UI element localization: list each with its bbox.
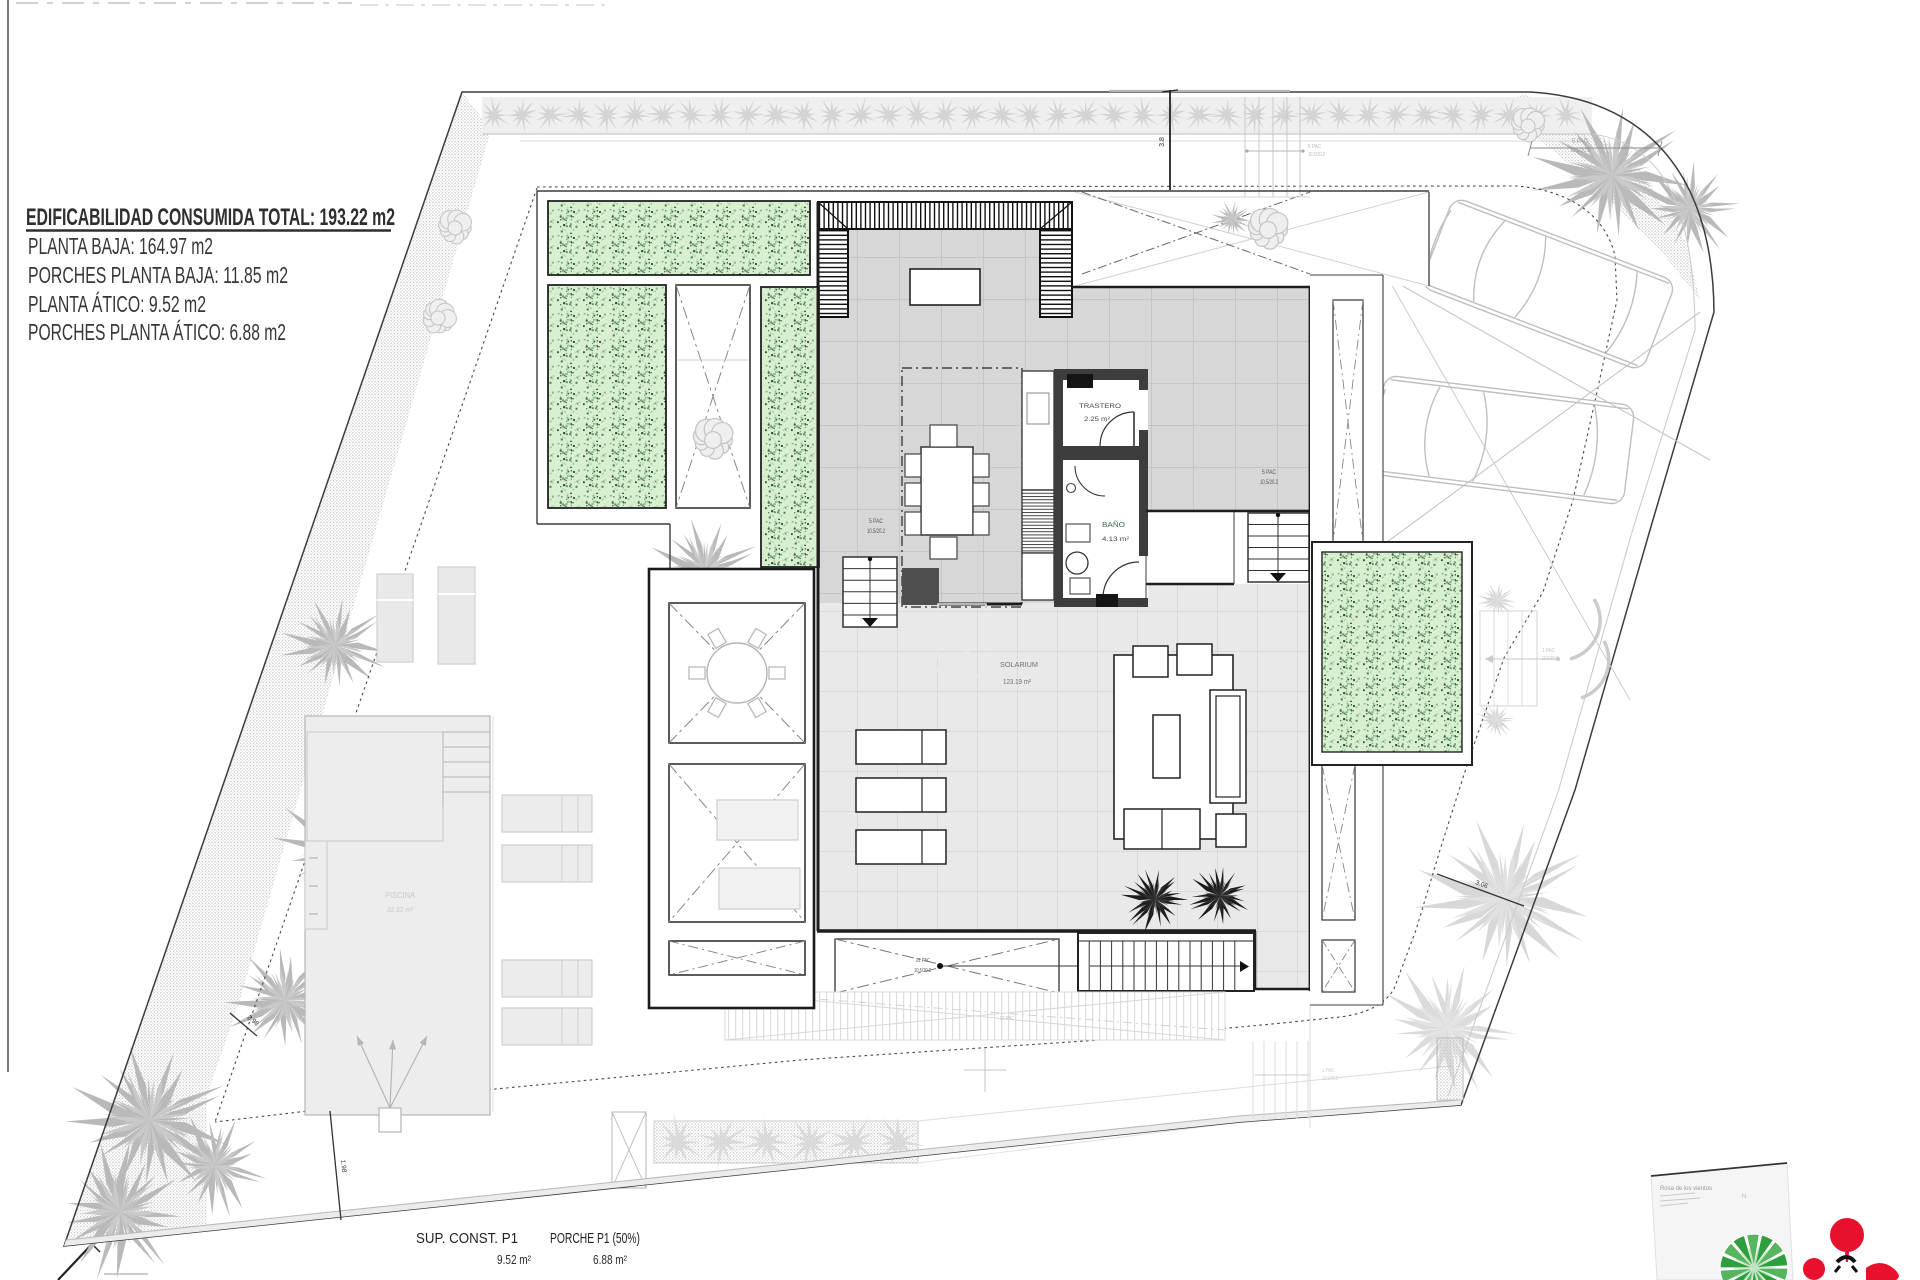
svg-text:22 PAC: 22 PAC bbox=[1000, 1016, 1014, 1022]
svg-text:6.88 m²: 6.88 m² bbox=[593, 1252, 628, 1267]
svg-text:10.5/20.2: 10.5/20.2 bbox=[1260, 480, 1278, 486]
svg-text:9.52 m²: 9.52 m² bbox=[497, 1252, 532, 1267]
svg-text:N: N bbox=[1742, 1194, 1746, 1200]
svg-text:PLANTA ÁTICO: 9.52 m2: PLANTA ÁTICO: 9.52 m2 bbox=[28, 291, 206, 317]
svg-text:1 PAC: 1 PAC bbox=[1322, 1068, 1334, 1074]
svg-text:5 PAC: 5 PAC bbox=[1308, 144, 1321, 150]
svg-text:Rosa de los vientos: Rosa de los vientos bbox=[1660, 1185, 1713, 1192]
svg-text:3.8: 3.8 bbox=[1159, 137, 1166, 147]
svg-text:4.13 m²: 4.13 m² bbox=[1102, 536, 1130, 543]
svg-text:5 PAC: 5 PAC bbox=[1572, 139, 1589, 145]
svg-text:SOLARIUM: SOLARIUM bbox=[1000, 660, 1038, 669]
svg-text:123.19 m²: 123.19 m² bbox=[1003, 679, 1032, 686]
svg-text:10.5/20.2: 10.5/20.2 bbox=[1322, 1076, 1338, 1082]
svg-text:EDIFICABILIDAD CONSUMIDA TOTAL: EDIFICABILIDAD CONSUMIDA TOTAL: 193.22 m… bbox=[26, 204, 395, 231]
svg-text:22 PAC: 22 PAC bbox=[916, 958, 930, 964]
svg-text:TRASTERO: TRASTERO bbox=[1079, 403, 1121, 410]
svg-text:10.5/20.2: 10.5/20.2 bbox=[1542, 656, 1558, 662]
svg-text:10.5/20.2: 10.5/20.2 bbox=[1308, 152, 1325, 158]
svg-text:10.5/20.2: 10.5/20.2 bbox=[914, 968, 931, 974]
svg-text:10.5/20.2: 10.5/20.2 bbox=[867, 529, 885, 535]
svg-text:BAÑO: BAÑO bbox=[1102, 520, 1125, 529]
svg-text:PLANTA BAJA: 164.97 m2: PLANTA BAJA: 164.97 m2 bbox=[28, 233, 213, 259]
svg-text:SUP. CONST. P1: SUP. CONST. P1 bbox=[416, 1230, 518, 1247]
svg-text:PORCHE P1 (50%): PORCHE P1 (50%) bbox=[550, 1230, 640, 1247]
svg-text:5 PAC: 5 PAC bbox=[1262, 470, 1277, 476]
svg-text:2.25 m²: 2.25 m² bbox=[1084, 416, 1110, 423]
svg-text:PORCHES PLANTA BAJA: 11.85 m2: PORCHES PLANTA BAJA: 11.85 m2 bbox=[28, 262, 288, 288]
svg-text:PISCINA: PISCINA bbox=[385, 891, 416, 900]
svg-text:1.98: 1.98 bbox=[339, 1159, 347, 1173]
svg-text:PORCHES PLANTA ÁTICO: 6.88 m2: PORCHES PLANTA ÁTICO: 6.88 m2 bbox=[28, 319, 286, 345]
svg-text:5 PAC: 5 PAC bbox=[869, 519, 884, 525]
svg-text:10.5/20.2: 10.5/20.2 bbox=[1570, 148, 1590, 154]
svg-text:32.32 m²: 32.32 m² bbox=[387, 907, 414, 914]
svg-text:1 PAC: 1 PAC bbox=[1542, 648, 1555, 654]
